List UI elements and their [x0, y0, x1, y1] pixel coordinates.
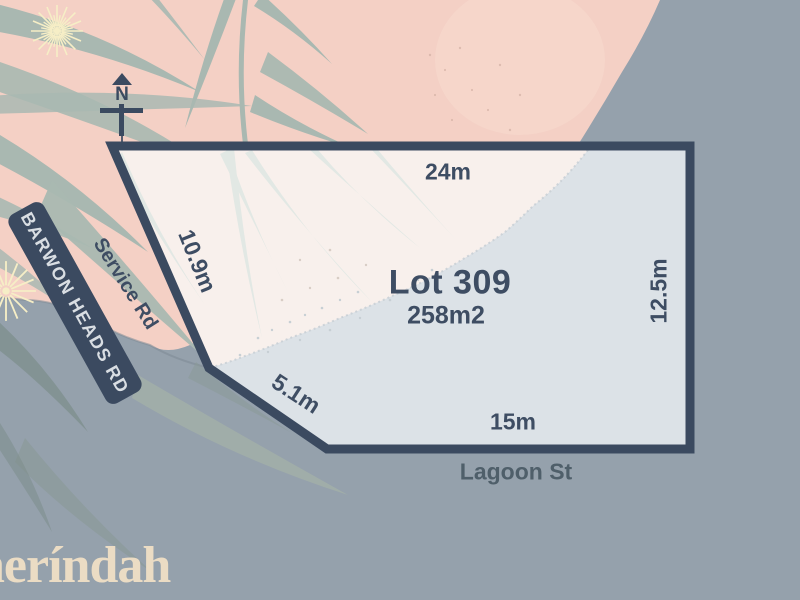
lot-title: Lot 309 — [389, 264, 512, 303]
dimension-top: 24m — [425, 159, 471, 186]
north-compass: N — [96, 70, 150, 142]
lot-area: 258m2 — [407, 302, 485, 331]
dimension-right: 12.5m — [646, 258, 673, 323]
site-plan: N BARWON HEADS RD Service Rd 24m 12.5m 1… — [0, 0, 800, 600]
compass-cross-vertical — [119, 104, 124, 136]
blossom-icon — [31, 5, 83, 57]
dimension-bottom: 15m — [490, 409, 536, 436]
lagoon-st-label: Lagoon St — [460, 459, 572, 486]
compass-north-label: N — [115, 84, 129, 106]
brand-logo: neríndah — [0, 536, 170, 595]
compass-tail — [121, 136, 123, 145]
